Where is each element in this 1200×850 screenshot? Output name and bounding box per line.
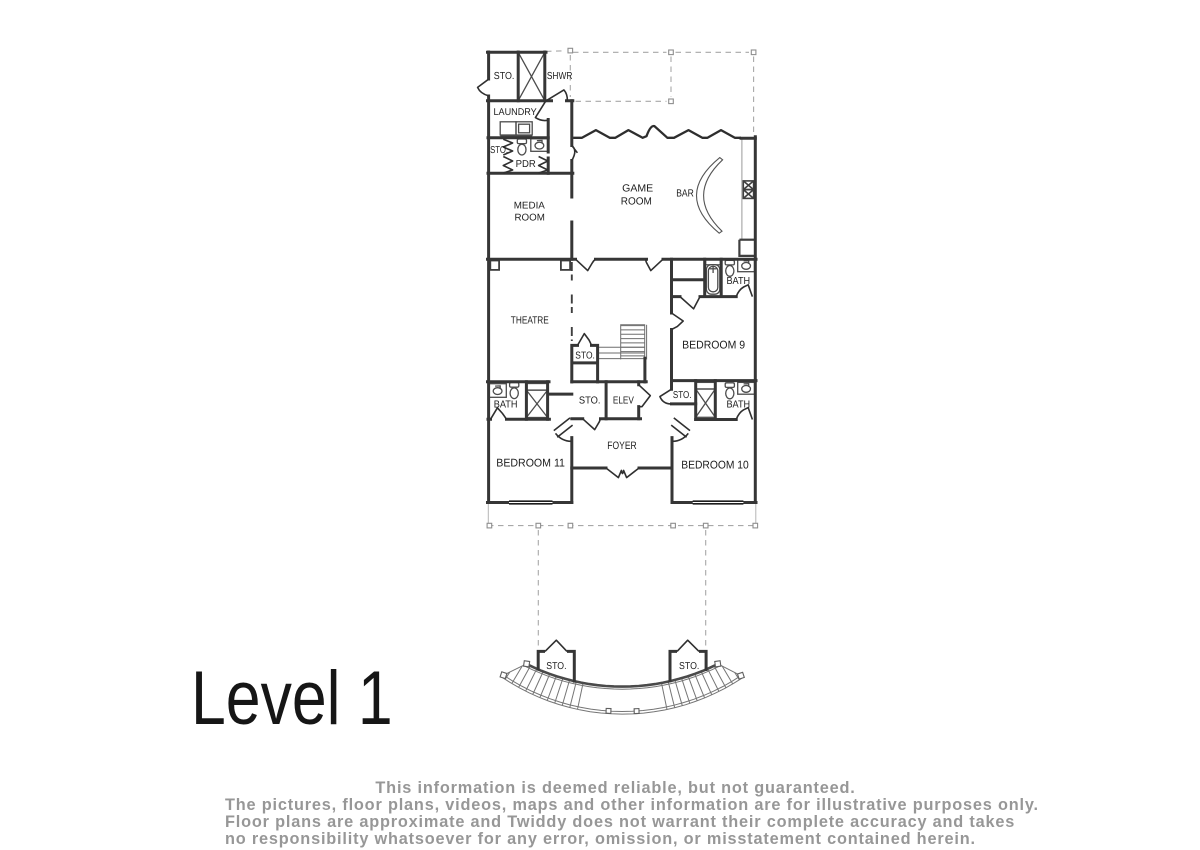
svg-text:BATH: BATH [726,399,750,410]
svg-text:ROOM: ROOM [515,213,545,224]
svg-text:FOYER: FOYER [607,440,637,452]
svg-text:SHWR: SHWR [547,71,573,82]
svg-text:LAUNDRY: LAUNDRY [493,107,537,118]
svg-text:PDR: PDR [516,159,536,170]
svg-text:ELEV: ELEV [613,395,634,406]
svg-text:GAME: GAME [622,183,653,194]
svg-text:BEDROOM 11: BEDROOM 11 [496,457,565,469]
svg-text:MEDIA: MEDIA [514,201,546,212]
svg-text:ROOM: ROOM [621,197,652,208]
svg-text:STO.: STO. [679,661,699,672]
svg-text:BEDROOM 10: BEDROOM 10 [681,459,749,471]
svg-text:STO.: STO. [575,350,595,361]
svg-text:THEATRE: THEATRE [511,316,549,327]
svg-text:STO.: STO. [546,661,566,672]
svg-text:BEDROOM 9: BEDROOM 9 [682,340,745,352]
svg-text:BATH: BATH [494,400,518,411]
svg-text:STO.: STO. [490,145,508,156]
svg-text:BATH: BATH [726,276,750,287]
svg-text:BAR: BAR [676,188,694,199]
svg-text:STO.: STO. [494,71,515,82]
svg-text:STO.: STO. [673,390,692,401]
svg-text:STO.: STO. [579,395,601,406]
